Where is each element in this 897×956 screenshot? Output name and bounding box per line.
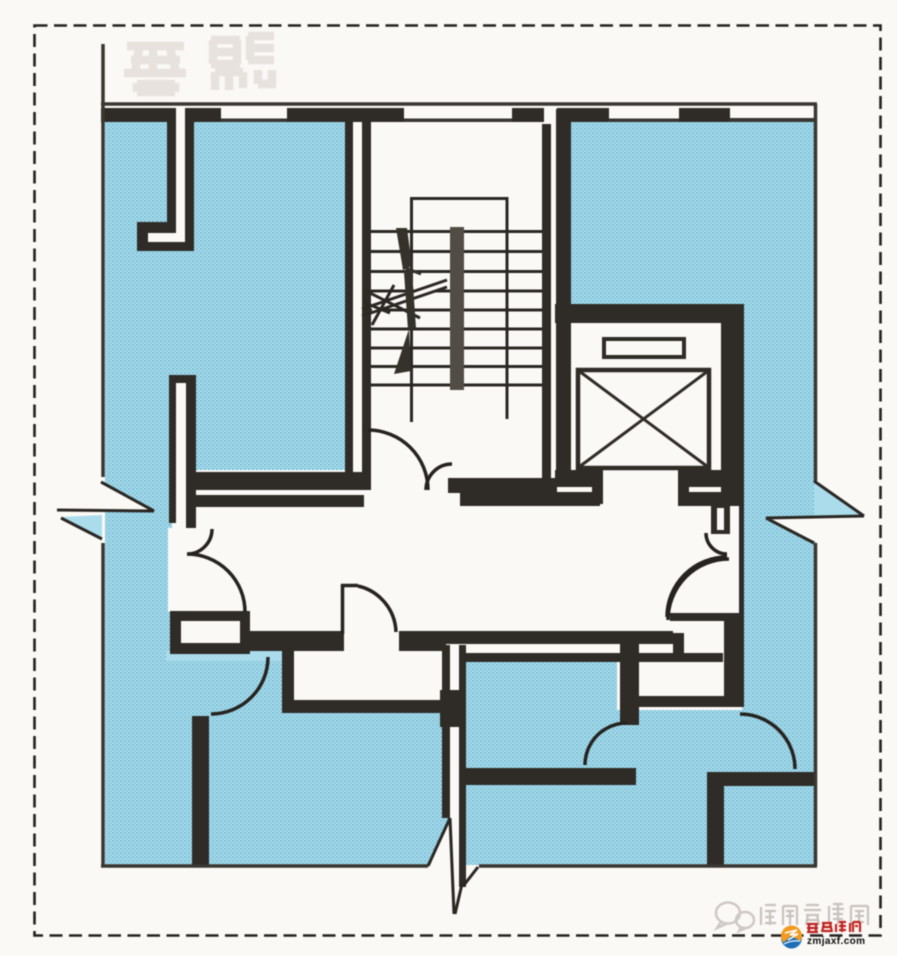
svg-text:zmjaxf.com: zmjaxf.com — [807, 936, 865, 947]
